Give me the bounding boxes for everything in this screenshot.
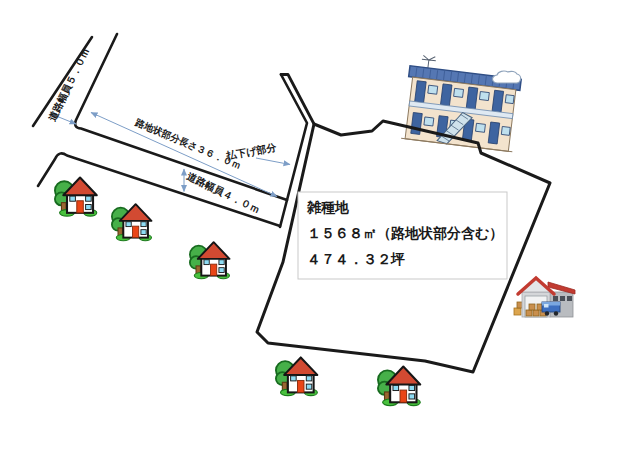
land-area-tsubo-text: ４７４．３２坪 [307,251,405,267]
site-plan-page: 道路幅員５．０ｍ 路地状部分長さ３６．０ｍ 道路幅員４．０ｍ 払下げ部分 雑種地… [0,0,640,453]
land-area-sqm-text: １５６８㎡（路地状部分含む） [307,225,503,241]
site-plan-canvas: 道路幅員５．０ｍ 路地状部分長さ３６．０ｍ 道路幅員４．０ｍ 払下げ部分 雑種地… [0,0,640,453]
apartment-building-icon [395,53,528,161]
alley-length-36m-label: 路地状部分長さ３６．０ｍ [134,116,243,171]
land-category-text: 雑種地 [306,199,349,215]
road-right-edge-upper-and-alley-top-line [75,34,287,200]
house-icon [378,367,420,406]
house-icon [55,178,97,217]
house-icon [276,357,317,395]
setback-leader-arrow [256,158,290,165]
house-icon [190,242,230,279]
setback-portion-label: 払下げ部分 [225,142,279,163]
warehouse-icon [514,278,575,317]
house-icon [112,204,152,241]
road-width-5m-label: 道路幅員５．０ｍ [46,46,91,123]
parcel-info-box: 雑種地 １５６８㎡（路地状部分含む） ４７４．３２坪 [298,192,507,279]
